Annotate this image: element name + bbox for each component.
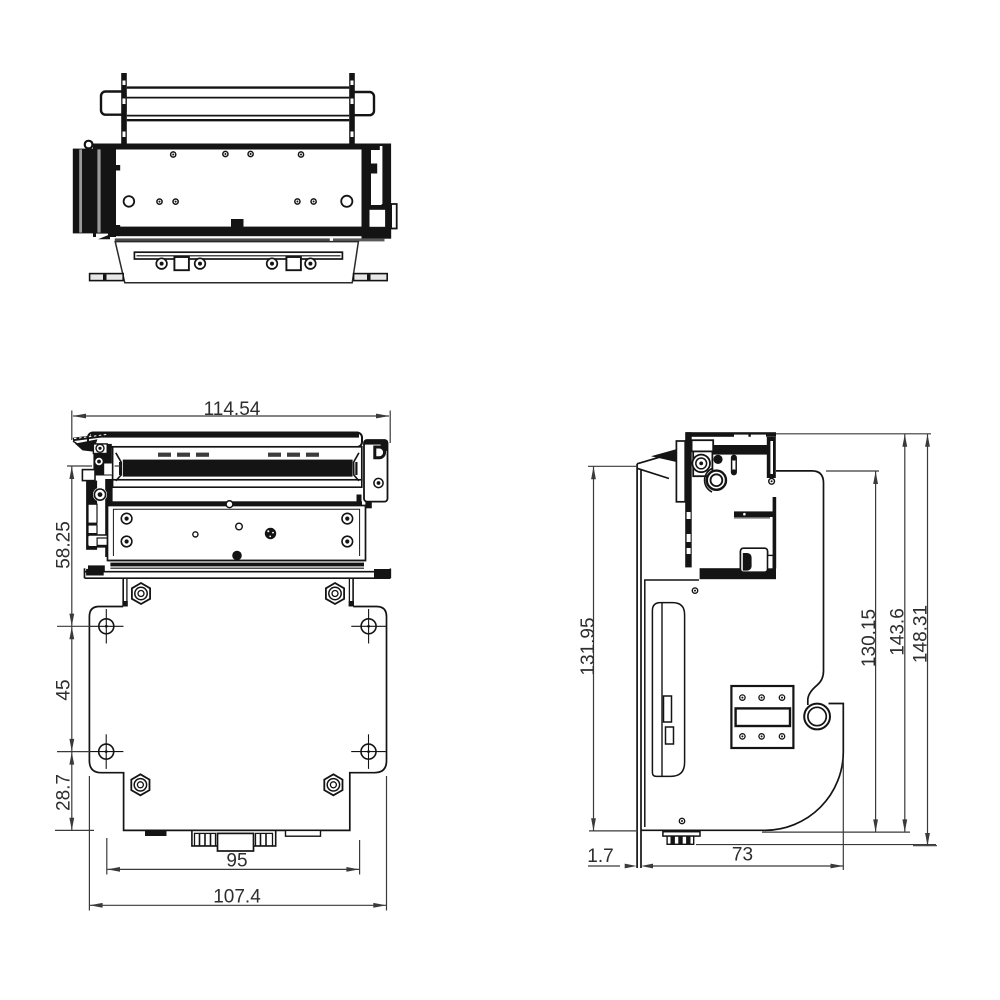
svg-text:107.4: 107.4 (213, 887, 261, 908)
svg-text:28.7: 28.7 (54, 774, 75, 811)
svg-text:130.15: 130.15 (859, 609, 880, 667)
svg-text:1.7: 1.7 (587, 846, 613, 867)
svg-text:148.31: 148.31 (911, 605, 932, 663)
svg-text:45: 45 (54, 679, 75, 700)
svg-text:58.25: 58.25 (54, 521, 75, 569)
svg-text:95: 95 (226, 851, 247, 872)
svg-text:114.54: 114.54 (204, 399, 261, 420)
svg-text:143.6: 143.6 (888, 608, 909, 656)
svg-text:131.95: 131.95 (578, 617, 599, 675)
svg-text:73: 73 (732, 845, 753, 866)
